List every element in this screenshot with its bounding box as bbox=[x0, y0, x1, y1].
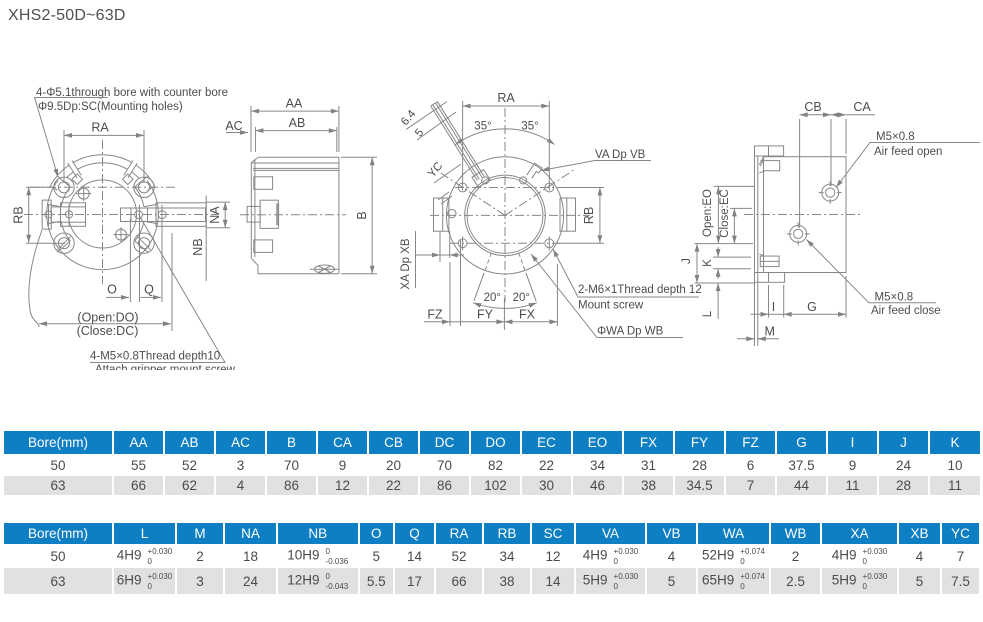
svg-text:35°: 35° bbox=[521, 121, 538, 133]
svg-text:RB: RB bbox=[582, 207, 596, 224]
svg-text:NB: NB bbox=[191, 238, 205, 255]
svg-text:RB: RB bbox=[11, 206, 25, 223]
svg-text:B: B bbox=[355, 211, 369, 219]
svg-text:AA: AA bbox=[286, 97, 303, 111]
svg-text:ΦWA Dp WB: ΦWA Dp WB bbox=[597, 326, 664, 338]
svg-text:(Close:DC): (Close:DC) bbox=[77, 324, 139, 338]
svg-text:Close:EC: Close:EC bbox=[719, 189, 731, 238]
svg-text:VA Dp VB: VA Dp VB bbox=[595, 149, 646, 161]
svg-text:Open:EO: Open:EO bbox=[702, 189, 714, 237]
svg-text:L: L bbox=[702, 310, 714, 317]
svg-text:NA: NA bbox=[208, 206, 222, 224]
svg-text:K: K bbox=[702, 259, 714, 267]
svg-text:Air feed open: Air feed open bbox=[874, 146, 942, 158]
svg-text:O: O bbox=[107, 283, 117, 297]
svg-text:FZ: FZ bbox=[427, 308, 443, 322]
svg-text:4-M5×0.8Thread depth10: 4-M5×0.8Thread depth10 bbox=[90, 351, 220, 363]
svg-text:CA: CA bbox=[853, 100, 871, 114]
svg-text:6.4: 6.4 bbox=[399, 108, 419, 128]
svg-text:Air feed close: Air feed close bbox=[871, 305, 941, 317]
svg-text:35°: 35° bbox=[474, 121, 491, 133]
svg-text:RA: RA bbox=[497, 91, 515, 105]
svg-text:FX: FX bbox=[519, 308, 536, 322]
svg-text:CB: CB bbox=[804, 100, 821, 114]
svg-text:AC: AC bbox=[225, 119, 242, 133]
svg-text:Mount screw: Mount screw bbox=[578, 300, 644, 312]
svg-text:FY: FY bbox=[477, 308, 494, 322]
svg-text:I: I bbox=[772, 300, 775, 314]
svg-text:XA Dp XB: XA Dp XB bbox=[400, 238, 412, 289]
svg-text:G: G bbox=[807, 300, 817, 314]
svg-text:M: M bbox=[765, 325, 775, 339]
svg-text:20°: 20° bbox=[484, 292, 501, 304]
svg-text:Q: Q bbox=[144, 283, 154, 297]
svg-text:5: 5 bbox=[413, 127, 426, 140]
svg-text:2-M6×1Thread depth 12: 2-M6×1Thread depth 12 bbox=[578, 284, 702, 296]
svg-text:RA: RA bbox=[91, 121, 109, 135]
svg-text:(Open:DO): (Open:DO) bbox=[77, 311, 138, 325]
svg-text:Φ9.5Dp:SC(Mounting holes): Φ9.5Dp:SC(Mounting holes) bbox=[38, 101, 183, 113]
svg-text:M5×0.8: M5×0.8 bbox=[876, 131, 915, 143]
svg-text:20°: 20° bbox=[513, 292, 530, 304]
svg-text:M5×0.8: M5×0.8 bbox=[875, 292, 914, 304]
svg-text:J: J bbox=[681, 258, 693, 264]
svg-text:AB: AB bbox=[289, 116, 306, 130]
